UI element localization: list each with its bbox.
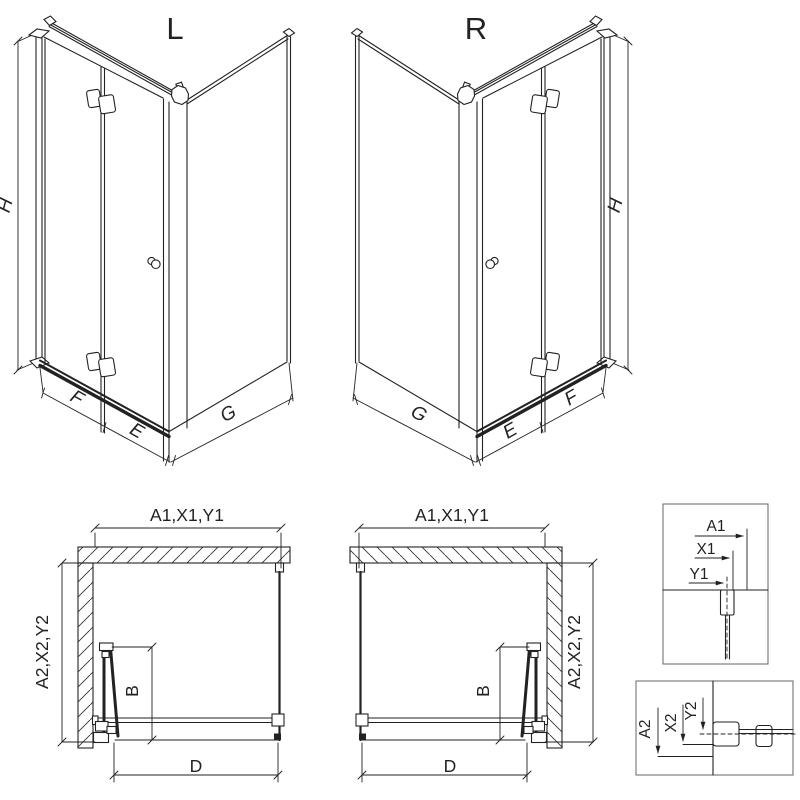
label-g-right: G xyxy=(407,401,430,426)
label-g-left: G xyxy=(217,401,240,426)
drawing-svg: L R H H F E G F E G A1,X1,Y1 A1,X1,Y1 A2… xyxy=(0,0,800,800)
label-e-right: E xyxy=(500,419,522,444)
iso-left-view xyxy=(14,16,295,466)
variant-title-right: R xyxy=(465,11,487,46)
label-d-left: D xyxy=(190,756,203,776)
label-a2x2y2-right: A2,X2,Y2 xyxy=(564,615,584,689)
label-detail-x2: X2 xyxy=(663,714,680,733)
label-f-right: F xyxy=(561,386,583,411)
label-d-right: D xyxy=(444,756,457,776)
label-height-left: H xyxy=(0,196,18,215)
label-b-right: B xyxy=(473,685,493,697)
label-detail-x1: X1 xyxy=(697,541,716,558)
label-a1x1y1-left: A1,X1,Y1 xyxy=(150,505,224,525)
label-detail-y2: Y2 xyxy=(683,702,700,721)
label-a2x2y2-left: A2,X2,Y2 xyxy=(32,615,52,689)
shower-enclosure-technical-drawing: L R H H F E G F E G A1,X1,Y1 A1,X1,Y1 A2… xyxy=(0,0,800,800)
plan-right-view xyxy=(350,524,597,782)
label-height-right: H xyxy=(604,196,628,215)
variant-title-left: L xyxy=(166,11,183,46)
label-detail-a1: A1 xyxy=(707,518,726,535)
iso-right-view xyxy=(352,16,633,466)
label-detail-y1: Y1 xyxy=(690,566,709,583)
label-detail-a2: A2 xyxy=(637,720,654,739)
label-a1x1y1-right: A1,X1,Y1 xyxy=(415,505,489,525)
label-b-left: B xyxy=(122,685,142,697)
detail-box-depth xyxy=(636,681,796,775)
plan-left-view xyxy=(58,524,290,782)
